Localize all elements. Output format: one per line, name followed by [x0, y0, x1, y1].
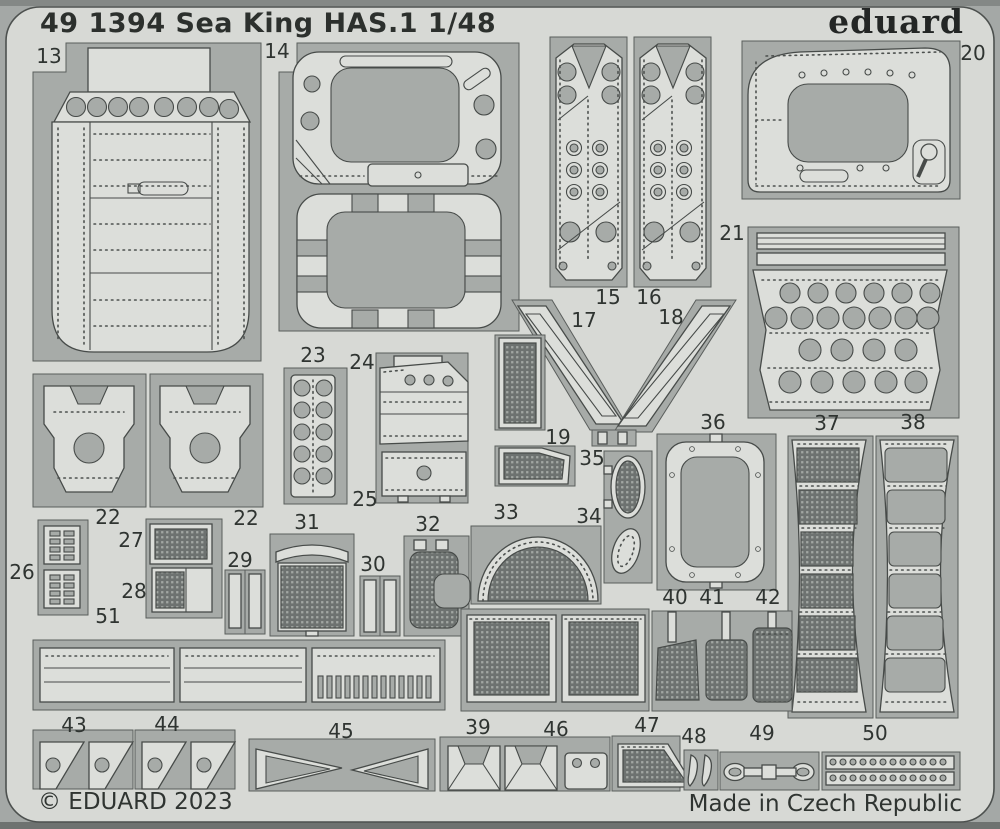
part-number-51: 51 [95, 604, 120, 628]
part-32 [404, 536, 470, 636]
part-number-20: 20 [960, 41, 985, 65]
part-number-24: 24 [349, 350, 374, 374]
part-number-19: 19 [545, 425, 570, 449]
part-42-shape [753, 628, 792, 702]
part-14 [279, 43, 519, 331]
part-23 [284, 368, 347, 504]
part-number-35: 35 [579, 446, 604, 470]
part-number-42: 42 [755, 585, 780, 609]
part-number-30: 30 [360, 552, 385, 576]
part-number-23: 23 [300, 343, 325, 367]
fret-artwork [0, 0, 1000, 829]
part-number-49: 49 [749, 721, 774, 745]
part-number-22b: 22 [233, 506, 258, 530]
part-33 [471, 526, 601, 604]
part-51 [33, 640, 445, 710]
copyright-text: © EDUARD 2023 [38, 789, 233, 815]
part-40-41-42 [652, 611, 792, 711]
part-number-15: 15 [595, 285, 620, 309]
part-16 [640, 44, 706, 280]
part-22b [160, 386, 250, 492]
part-20 [742, 41, 960, 199]
part-26 [38, 520, 88, 615]
part-39 [461, 609, 649, 711]
part-number-26: 26 [9, 560, 34, 584]
part-25 [382, 452, 466, 502]
photoetch-fret-sheet: 49 1394 Sea King HAS.1 1/48 eduard © EDU… [0, 0, 1000, 829]
part-number-41: 41 [699, 585, 724, 609]
part-number-21: 21 [719, 221, 744, 245]
part-number-31: 31 [294, 510, 319, 534]
made-in-text: Made in Czech Republic [689, 791, 962, 817]
part-30 [360, 576, 400, 636]
part-46 [440, 737, 610, 791]
part-number-17: 17 [571, 308, 596, 332]
part-number-27: 27 [118, 528, 143, 552]
part-number-44: 44 [154, 712, 179, 736]
part-17-18-tabs [592, 430, 636, 446]
part-number-47: 47 [634, 713, 659, 737]
part-15 [556, 44, 622, 280]
part-48 [684, 750, 718, 790]
part-number-18: 18 [658, 305, 683, 329]
part-number-50: 50 [862, 721, 887, 745]
part-number-29: 29 [227, 548, 252, 572]
part-28 [152, 568, 212, 612]
part-40-shape [656, 640, 699, 700]
part-13 [33, 43, 261, 361]
part-21 [748, 227, 959, 418]
part-22a [44, 386, 134, 492]
part-number-32: 32 [415, 512, 440, 536]
part-number-14: 14 [264, 39, 289, 63]
part-36 [657, 434, 776, 590]
part-49 [720, 752, 819, 790]
part-number-36: 36 [700, 410, 725, 434]
part-number-28: 28 [121, 579, 146, 603]
part-number-48: 48 [681, 724, 706, 748]
part-31 [270, 534, 354, 636]
part-number-13: 13 [36, 44, 61, 68]
part-number-43: 43 [61, 713, 86, 737]
sheet-title: 49 1394 Sea King HAS.1 1/48 [40, 8, 496, 39]
part-number-34: 34 [576, 504, 601, 528]
part-50 [822, 752, 960, 790]
eduard-logo: eduard [828, 2, 964, 41]
part-number-38: 38 [900, 410, 925, 434]
part-number-45: 45 [328, 719, 353, 743]
part-number-37: 37 [814, 411, 839, 435]
part-41-shape [706, 640, 747, 700]
part-29 [225, 570, 265, 634]
part-number-39: 39 [465, 715, 490, 739]
part-number-33: 33 [493, 500, 518, 524]
part-number-46: 46 [543, 717, 568, 741]
part-number-25: 25 [352, 487, 377, 511]
part-45 [249, 739, 435, 791]
part-number-22a: 22 [95, 505, 120, 529]
part-number-40: 40 [662, 585, 687, 609]
